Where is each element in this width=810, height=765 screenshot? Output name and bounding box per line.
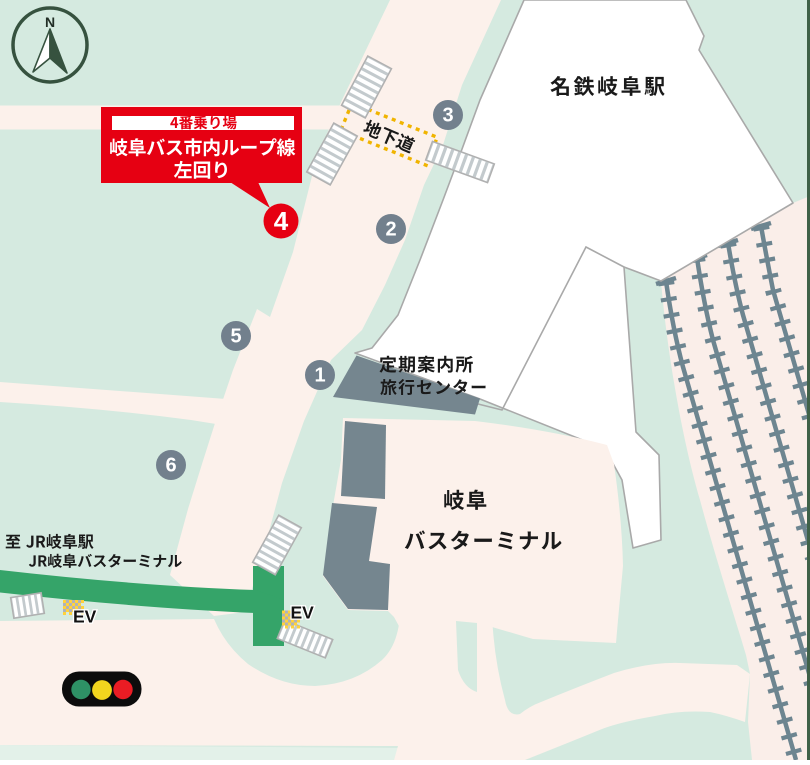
svg-text:5: 5 [230, 326, 241, 348]
svg-text:EV: EV [73, 607, 97, 627]
svg-text:N: N [45, 14, 55, 30]
svg-text:EV: EV [291, 603, 315, 623]
svg-text:6: 6 [165, 455, 176, 477]
svg-text:3: 3 [442, 105, 453, 127]
svg-text:2: 2 [385, 219, 396, 241]
svg-text:4: 4 [274, 206, 289, 236]
svg-text:1: 1 [314, 365, 325, 387]
